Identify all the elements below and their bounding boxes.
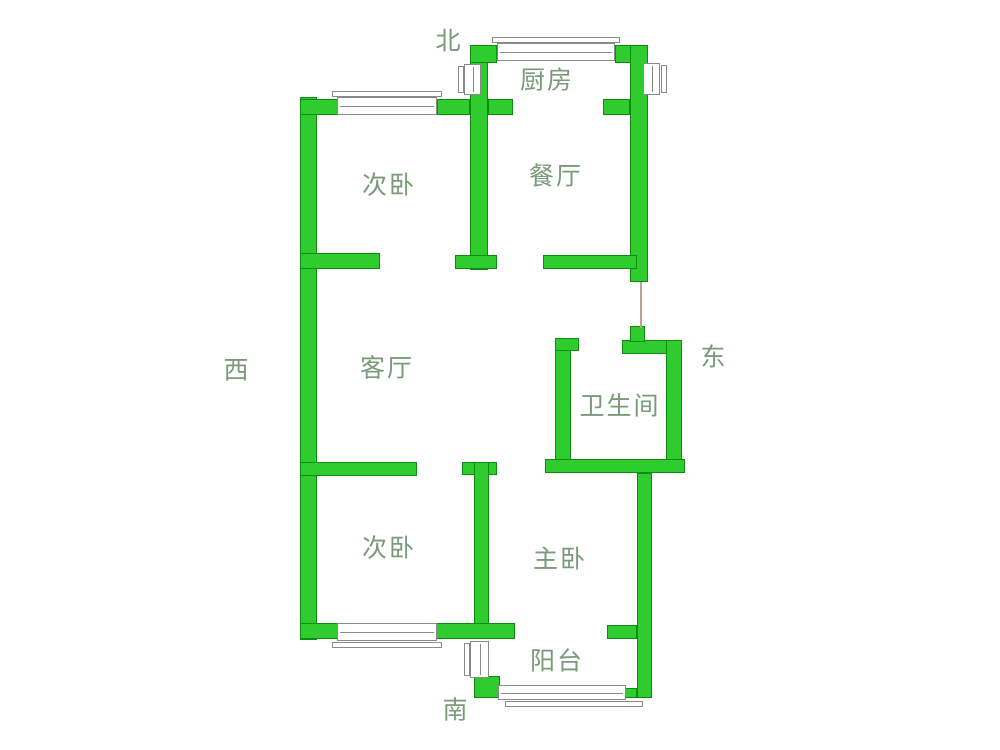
compass-west-label: 西 xyxy=(223,358,250,383)
balcony-left-window xyxy=(470,641,489,678)
wall-master-right xyxy=(637,473,652,698)
wall-center-divider xyxy=(474,462,489,639)
kitchen-left-window xyxy=(464,64,481,95)
master-bedroom-label: 主卧 xyxy=(533,547,587,572)
kitchen-right-window-sill xyxy=(661,65,667,93)
kitchen-label: 厨房 xyxy=(520,68,574,93)
wall-kitchen-top-left xyxy=(470,45,497,63)
floor-plan: 北 南 西 东 厨房 餐厅 次卧 客厅 卫生间 次卧 主卧 阳台 xyxy=(0,0,1000,750)
bedroom-north-label: 次卧 xyxy=(362,173,416,198)
wall-bathroom-top-cap xyxy=(555,338,579,351)
wall-north-mid-segment xyxy=(437,99,470,115)
wall-bathroom-stub xyxy=(630,326,645,342)
dining-label: 餐厅 xyxy=(529,164,583,189)
wall-kitchen-door-left xyxy=(488,99,513,115)
wall-west-exterior xyxy=(300,97,317,640)
balcony-window-sill xyxy=(505,701,643,707)
wall-dining-bottom xyxy=(543,255,637,269)
wall-balcony-door-stub xyxy=(607,625,637,639)
balcony-window xyxy=(498,685,626,700)
living-room-label: 客厅 xyxy=(360,356,414,381)
wall-bathroom-bottom xyxy=(545,459,685,473)
balcony-label: 阳台 xyxy=(530,649,584,674)
wall-north-west-segment xyxy=(300,99,340,115)
bathroom-label: 卫生间 xyxy=(579,394,660,419)
wall-divider-foot xyxy=(455,255,497,269)
compass-north-label: 北 xyxy=(435,29,462,54)
bedroom2-window-sill xyxy=(332,642,442,648)
wall-bedroom1-bottom xyxy=(300,253,380,269)
compass-east-label: 东 xyxy=(700,345,727,370)
bedroom-south-label: 次卧 xyxy=(362,536,416,561)
kitchen-right-window xyxy=(643,63,660,95)
passage-line xyxy=(640,282,642,328)
wall-living-bottom xyxy=(300,462,417,476)
bedroom2-window xyxy=(337,623,437,641)
wall-bathroom-right xyxy=(666,340,682,473)
kitchen-window xyxy=(497,43,615,61)
wall-kitchen-door-right xyxy=(603,99,630,115)
wall-bathroom-left xyxy=(555,338,571,473)
wall-balcony-sw-corner xyxy=(474,676,500,698)
compass-south-label: 南 xyxy=(442,698,469,723)
north-window xyxy=(337,97,437,115)
